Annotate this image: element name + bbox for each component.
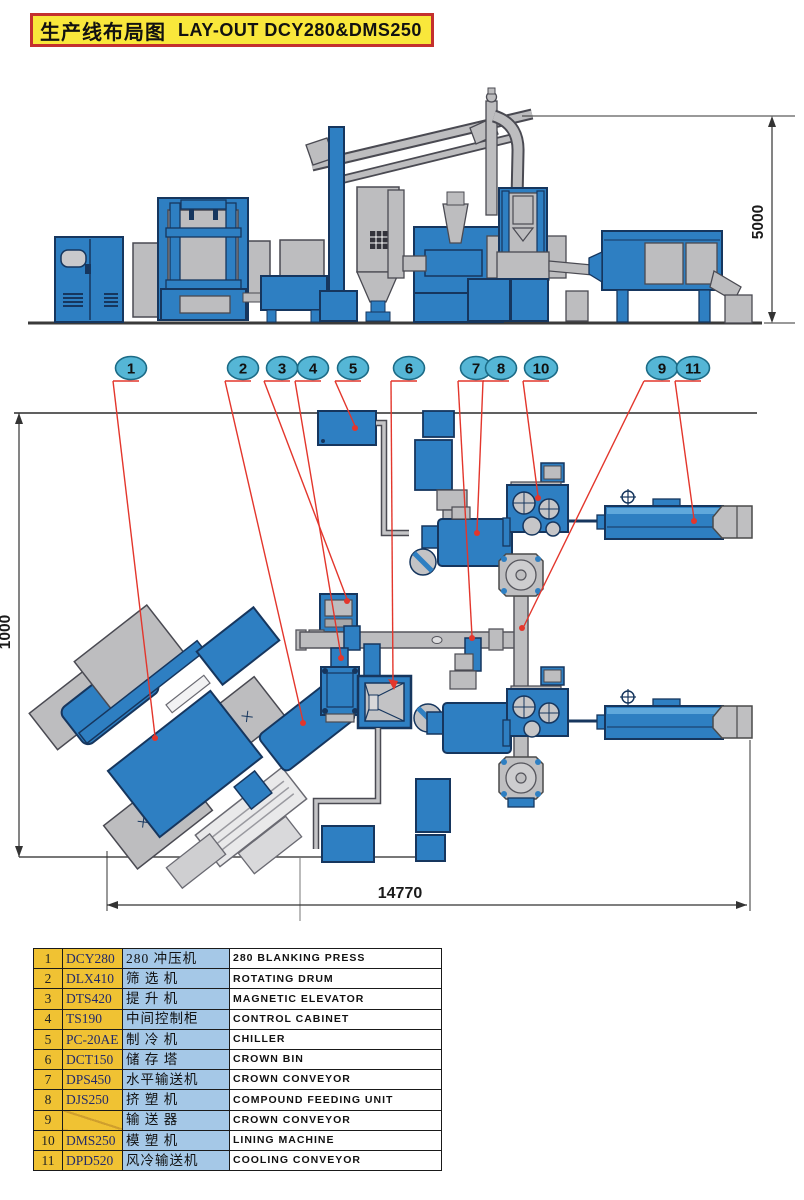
name-chinese: 制 冷 机 (123, 1029, 230, 1049)
model-code: DPS450 (63, 1070, 123, 1090)
name-chinese: 储 存 塔 (123, 1049, 230, 1069)
callout-bubble-2: 2 (228, 357, 259, 380)
name-english: LINING MACHINE (230, 1130, 442, 1150)
layout-drawing-page: 生产线布局图 LAY-OUT DCY280&DMS250 (0, 0, 804, 1200)
chiller-plan (318, 411, 409, 533)
table-row: 1DCY280280 冲压机280 BLANKING PRESS (34, 949, 442, 969)
row-number: 4 (34, 1009, 63, 1029)
name-english: 280 BLANKING PRESS (230, 949, 442, 969)
model-code: DLX410 (63, 969, 123, 989)
name-english: COOLING CONVEYOR (230, 1150, 442, 1170)
plan-view: 1000 14770 (0, 357, 757, 922)
elevation-view: 5000 (28, 88, 795, 323)
cooling-conveyor-plan-upper (568, 489, 752, 539)
table-row: 4TS190中间控制柜CONTROL CABINET (34, 1009, 442, 1029)
name-chinese: 水平输送机 (123, 1070, 230, 1090)
table-row: 3DTS420提 升 机MAGNETIC ELEVATOR (34, 989, 442, 1009)
callout-label: 3 (278, 361, 286, 378)
model-code: DJS250 (63, 1090, 123, 1110)
table-row: 2DLX410筛 选 机ROTATING DRUM (34, 969, 442, 989)
leader-8 (474, 381, 509, 536)
name-english: CONTROL CABINET (230, 1009, 442, 1029)
layout-diagram: 5000 1000 14770 (0, 0, 804, 948)
extruder-plan-lower (414, 638, 511, 861)
callout-bubble-3: 3 (267, 357, 298, 380)
dim-14770-label: 14770 (378, 885, 423, 902)
model-code: DPD520 (63, 1150, 123, 1170)
bin-discharge-pipe (316, 728, 378, 862)
name-english: CROWN CONVEYOR (230, 1070, 442, 1090)
table-row: 9输 送 器CROWN CONVEYOR (34, 1110, 442, 1130)
model-code: PC-20AE (63, 1029, 123, 1049)
name-chinese: 提 升 机 (123, 989, 230, 1009)
name-chinese: 筛 选 机 (123, 969, 230, 989)
row-number: 2 (34, 969, 63, 989)
model-code: DCY280 (63, 949, 123, 969)
equipment-table: 1DCY280280 冲压机280 BLANKING PRESS 2DLX410… (33, 948, 442, 1171)
lining-machine-plan-lower (503, 667, 568, 746)
dim-1000-label: 1000 (0, 615, 14, 649)
name-chinese: 挤 塑 机 (123, 1090, 230, 1110)
name-english: MAGNETIC ELEVATOR (230, 989, 442, 1009)
row-number: 10 (34, 1130, 63, 1150)
callout-bubble-11: 11 (677, 357, 710, 380)
row-number: 3 (34, 989, 63, 1009)
name-chinese: 280 冲压机 (123, 949, 230, 969)
row-number: 9 (34, 1110, 63, 1130)
callout-bubble-1: 1 (116, 357, 147, 380)
callout-bubble-5: 5 (338, 357, 369, 380)
name-english: CHILLER (230, 1029, 442, 1049)
callout-bubble-9: 9 (647, 357, 678, 380)
crown-conveyor-plan (499, 554, 543, 807)
callout-label: 6 (405, 361, 413, 378)
row-number: 6 (34, 1049, 63, 1069)
cooling-conveyor-plan-lower (568, 689, 752, 739)
table-row: 8DJS250挤 塑 机COMPOUND FEEDING UNIT (34, 1090, 442, 1110)
callout-label: 8 (497, 361, 505, 378)
table-row: 11DPD520风冷输送机COOLING CONVEYOR (34, 1150, 442, 1170)
callout-label: 1 (127, 361, 135, 378)
table-row: 10DMS250模 塑 机LINING MACHINE (34, 1130, 442, 1150)
row-number: 5 (34, 1029, 63, 1049)
table-row: 5PC-20AE制 冷 机CHILLER (34, 1029, 442, 1049)
callout-label: 11 (685, 361, 701, 378)
cooling-conveyor-elevation (589, 231, 752, 323)
callout-bubble-8: 8 (486, 357, 517, 380)
name-chinese: 模 塑 机 (123, 1130, 230, 1150)
callout-bubbles: 1 2 3 4 5 6 7 8 10 9 11 (116, 357, 710, 380)
model-code: DMS250 (63, 1130, 123, 1150)
row-number: 1 (34, 949, 63, 969)
table-row: 6DCT150储 存 塔CROWN BIN (34, 1049, 442, 1069)
model-code: DTS420 (63, 989, 123, 1009)
row-number: 11 (34, 1150, 63, 1170)
model-code: TS190 (63, 1009, 123, 1029)
control-cabinet-elevation (55, 237, 123, 322)
callout-label: 5 (349, 361, 357, 378)
name-chinese: 输 送 器 (123, 1110, 230, 1130)
callout-label: 7 (472, 361, 480, 378)
callout-label: 4 (309, 361, 318, 378)
name-english: CROWN BIN (230, 1049, 442, 1069)
callout-bubble-4: 4 (298, 357, 329, 380)
name-english: CROWN CONVEYOR (230, 1110, 442, 1130)
callout-label: 2 (239, 361, 247, 378)
callout-bubble-10: 10 (525, 357, 558, 380)
callout-bubble-6: 6 (394, 357, 425, 380)
row-number: 8 (34, 1090, 63, 1110)
name-chinese: 风冷输送机 (123, 1150, 230, 1170)
model-code: DCT150 (63, 1049, 123, 1069)
model-code (63, 1110, 123, 1130)
callout-label: 10 (533, 361, 550, 378)
table-row: 7DPS450水平输送机CROWN CONVEYOR (34, 1070, 442, 1090)
crown-bin-plan (358, 644, 411, 728)
name-english: COMPOUND FEEDING UNIT (230, 1090, 442, 1110)
dimension-5000: 5000 (522, 116, 795, 323)
row-number: 7 (34, 1070, 63, 1090)
dim-5000-label: 5000 (750, 205, 767, 239)
callout-label: 9 (658, 361, 666, 378)
name-english: ROTATING DRUM (230, 969, 442, 989)
name-chinese: 中间控制柜 (123, 1009, 230, 1029)
